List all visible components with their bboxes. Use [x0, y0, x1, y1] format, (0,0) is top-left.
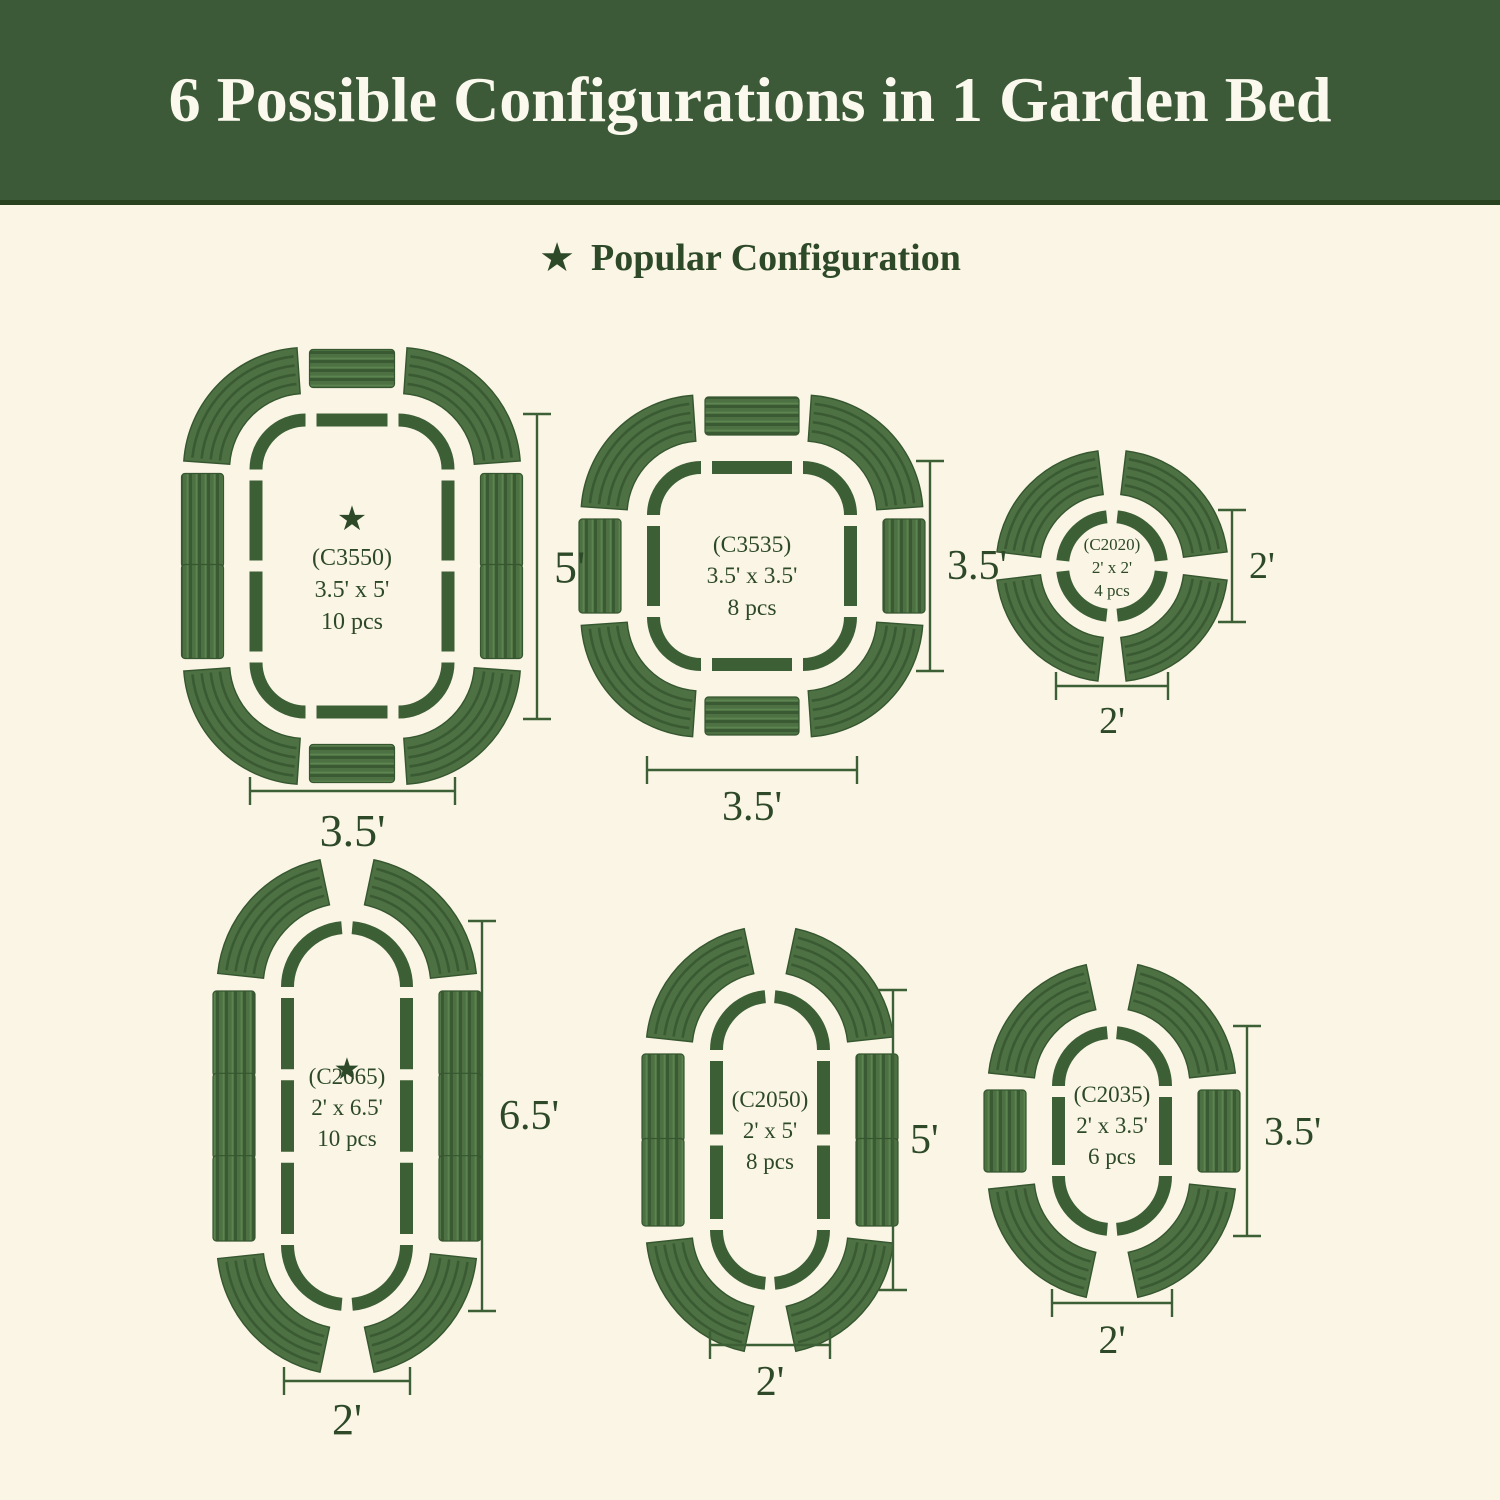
corner-panel [581, 395, 696, 510]
corner-panel [1121, 575, 1227, 681]
side-panel [310, 745, 395, 783]
side-panel [213, 991, 255, 1076]
corner-panel [404, 348, 520, 464]
corner-panel [647, 929, 754, 1042]
side-panel [705, 397, 799, 435]
side-panel [481, 474, 523, 568]
corner-panel [1121, 451, 1227, 557]
infographic-canvas: 6 Possible Configurations in 1 Garden Be… [0, 0, 1500, 1500]
side-panel [642, 1054, 684, 1142]
side-panel [856, 1054, 898, 1142]
corner-panel [989, 1184, 1096, 1297]
corner-panel [184, 348, 300, 464]
corner-panel [218, 1254, 330, 1372]
corner-panel [808, 622, 923, 737]
corner-panel [404, 668, 520, 784]
corner-panel [786, 929, 893, 1042]
side-panel [856, 1139, 898, 1227]
config-diagram-c3535 [579, 395, 944, 784]
config-diagram-c3550 [182, 348, 552, 805]
corner-panel [1128, 1184, 1235, 1297]
configurations-diagram [0, 0, 1500, 1500]
side-panel [182, 565, 224, 659]
side-panel [984, 1090, 1026, 1172]
side-panel [705, 697, 799, 735]
config-diagram-c2050 [642, 929, 907, 1359]
corner-panel [997, 575, 1103, 681]
side-panel [642, 1139, 684, 1227]
corner-panel [808, 395, 923, 510]
side-panel [579, 519, 621, 613]
corner-panel [997, 451, 1103, 557]
side-panel [213, 1073, 255, 1158]
side-panel [439, 991, 481, 1076]
config-diagram-c2020 [997, 451, 1246, 700]
side-panel [481, 565, 523, 659]
side-panel [439, 1156, 481, 1241]
side-panel [182, 474, 224, 568]
corner-panel [365, 1254, 477, 1372]
corner-panel [1128, 965, 1235, 1078]
side-panel [310, 350, 395, 388]
corner-panel [647, 1238, 754, 1351]
corner-panel [184, 668, 300, 784]
side-panel [883, 519, 925, 613]
side-panel [1198, 1090, 1240, 1172]
side-panel [213, 1156, 255, 1241]
corner-panel [218, 860, 330, 978]
corner-panel [365, 860, 477, 978]
config-diagram-c2035 [984, 965, 1261, 1317]
config-diagram-c2065 [213, 860, 496, 1395]
side-panel [439, 1073, 481, 1158]
corner-panel [581, 622, 696, 737]
corner-panel [989, 965, 1096, 1078]
corner-panel [786, 1238, 893, 1351]
